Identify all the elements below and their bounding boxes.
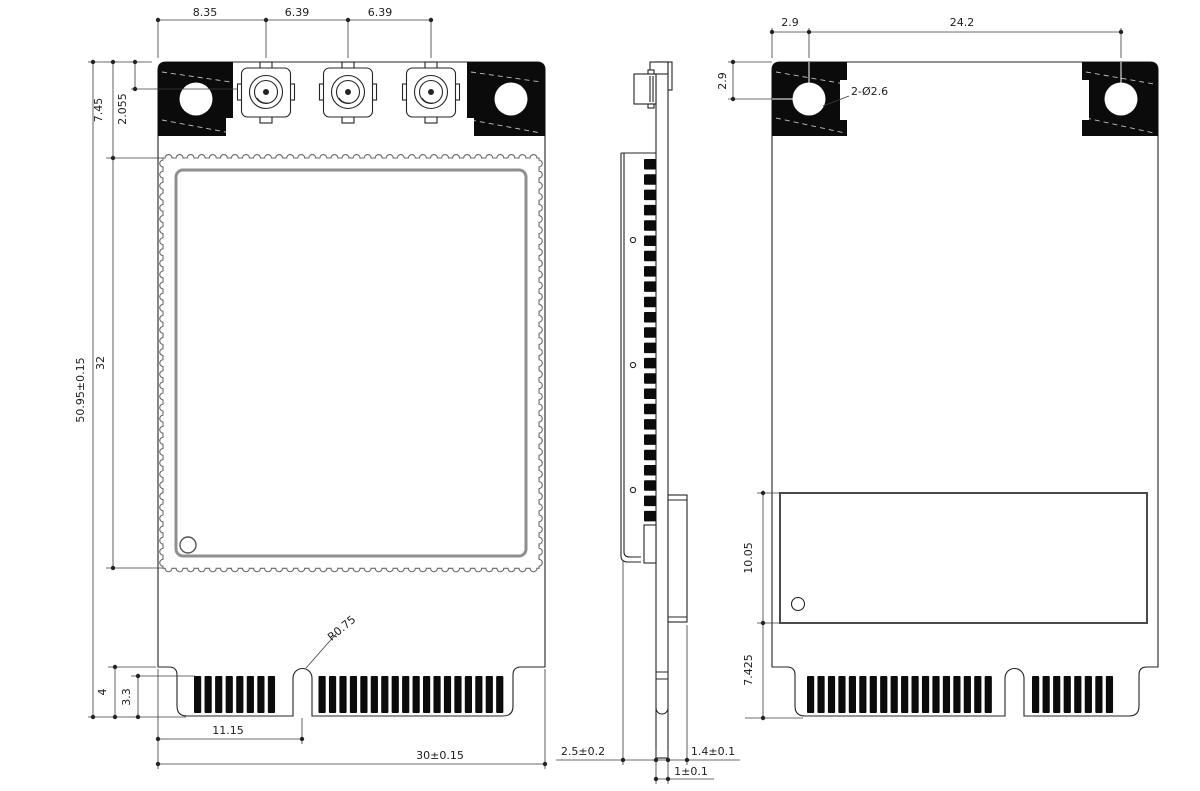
shield-contact — [644, 343, 656, 354]
edge-finger-pin — [194, 676, 201, 713]
tab-notch — [467, 118, 474, 136]
edge-finger-pin — [922, 676, 929, 713]
dim-label-1-4: 1.4±0.1 — [691, 745, 735, 758]
mounting-hole — [495, 83, 528, 116]
edge-finger-pin — [247, 676, 254, 713]
tab-notch — [226, 118, 233, 136]
shield-contact — [644, 281, 656, 292]
tab-notch — [840, 80, 847, 120]
rf-connector-3 — [403, 62, 460, 123]
edge-finger-pin — [257, 676, 264, 713]
edge-finger-pin — [838, 676, 845, 713]
side-view: 2.5±0.2 1.4±0.1 1±0.1 — [556, 62, 740, 784]
edge-finger-pin — [496, 676, 503, 713]
edge-finger-pin — [932, 676, 939, 713]
shield-contact — [644, 312, 656, 323]
back-shield — [780, 493, 1147, 623]
dim-label-3-3: 3.3 — [120, 688, 133, 706]
side-rf-connector — [634, 70, 656, 108]
edge-finger-pin — [465, 676, 472, 713]
mounting-hole — [793, 83, 826, 116]
edge-finger-pin — [350, 676, 357, 713]
shield-contact — [644, 404, 656, 415]
dim-label-8-35: 8.35 — [193, 6, 218, 19]
shield-contact — [644, 434, 656, 445]
shield-contact — [644, 190, 656, 201]
dim-label-7-425: 7.425 — [742, 654, 755, 686]
shield-contact — [644, 297, 656, 308]
shield-contact — [644, 511, 656, 522]
edge-finger-pin — [454, 676, 461, 713]
edge-finger-pin — [1085, 676, 1092, 713]
shield-contact — [644, 159, 656, 170]
shield-contact — [644, 327, 656, 338]
edge-finger-pin — [371, 676, 378, 713]
dim-label-6-39b: 6.39 — [368, 6, 393, 19]
side-shield-contacts — [644, 159, 656, 521]
mechanical-drawing: 8.35 6.39 6.39 7.45 2.055 50.95±0.15 32 … — [0, 0, 1200, 791]
dim-label-10-05: 10.05 — [742, 542, 755, 574]
edge-finger-pin — [402, 676, 409, 713]
edge-finger-pin — [236, 676, 243, 713]
shield-contact — [644, 465, 656, 476]
edge-finger-pin — [1032, 676, 1039, 713]
shield-contact — [644, 496, 656, 507]
shield-contact — [644, 389, 656, 400]
edge-finger-pin — [392, 676, 399, 713]
edge-finger-pin — [486, 676, 493, 713]
edge-finger-pin — [1053, 676, 1060, 713]
edge-finger-pin — [1074, 676, 1081, 713]
edge-finger-pin — [880, 676, 887, 713]
shield-contact — [644, 480, 656, 491]
edge-finger-pin — [226, 676, 233, 713]
edge-finger-pin — [964, 676, 971, 713]
edge-finger-pin — [985, 676, 992, 713]
edge-finger-pin — [360, 676, 367, 713]
shield-contact — [644, 205, 656, 216]
edge-finger-pin — [849, 676, 856, 713]
shield-contact — [644, 174, 656, 185]
rf-connector-2 — [320, 62, 377, 123]
edge-finger-pin — [974, 676, 981, 713]
pin1-marker — [180, 537, 196, 553]
dim-label-11-15: 11.15 — [212, 724, 244, 737]
side-dimensions: 2.5±0.2 1.4±0.1 1±0.1 — [556, 560, 740, 784]
edge-finger-pin — [433, 676, 440, 713]
shield-vent-hole — [630, 487, 635, 492]
dim-label-1: 1±0.1 — [674, 765, 708, 778]
back-mounting-tab-right — [1082, 62, 1158, 136]
dim-label-2-9y: 2.9 — [716, 72, 729, 90]
edge-finger-pin — [891, 676, 898, 713]
dim-label-4: 4 — [96, 689, 109, 696]
dim-label-30: 30±0.15 — [416, 749, 464, 762]
edge-finger-pin — [205, 676, 212, 713]
edge-finger-pin — [859, 676, 866, 713]
edge-finger-pin — [1064, 676, 1071, 713]
edge-finger-pin — [444, 676, 451, 713]
edge-finger-pin — [319, 676, 326, 713]
edge-finger-pin — [381, 676, 388, 713]
edge-finger-pin — [901, 676, 908, 713]
edge-finger-pin — [943, 676, 950, 713]
edge-finger-pin — [1043, 676, 1050, 713]
edge-finger-pin — [912, 676, 919, 713]
edge-finger-pin — [215, 676, 222, 713]
shield-contact — [644, 358, 656, 369]
shield-contact — [644, 266, 656, 277]
edge-finger-pin — [475, 676, 482, 713]
shield-contact — [644, 419, 656, 430]
shield-contact — [644, 220, 656, 231]
front-mounting-tab-left — [158, 62, 233, 136]
back-view: 2.9 24.2 2.9 2-Ø2.6 10.05 7.425 — [716, 16, 1158, 720]
edge-finger-pin — [268, 676, 275, 713]
edge-finger-pin — [817, 676, 824, 713]
edge-finger-pin — [828, 676, 835, 713]
shield-contact — [644, 373, 656, 384]
side-pcb — [656, 62, 668, 758]
shield-vent-hole — [630, 237, 635, 242]
dim-label-2-9x: 2.9 — [781, 16, 799, 29]
edge-finger-pin — [1095, 676, 1102, 713]
edge-finger-pin — [1106, 676, 1113, 713]
dim-label-hole-dia: 2-Ø2.6 — [851, 85, 888, 98]
tab-notch — [1082, 80, 1089, 120]
side-top-tab-edge — [668, 62, 672, 90]
edge-finger-pin — [870, 676, 877, 713]
shield-contact — [644, 450, 656, 461]
side-shield — [621, 153, 656, 563]
edge-finger-pin — [807, 676, 814, 713]
side-back-shield — [668, 495, 687, 622]
shield-contact — [644, 236, 656, 247]
edge-finger-pin — [339, 676, 346, 713]
mounting-hole — [1105, 83, 1138, 116]
dim-label-7-45: 7.45 — [92, 98, 105, 123]
dim-label-2-055: 2.055 — [116, 93, 129, 125]
front-view: 8.35 6.39 6.39 7.45 2.055 50.95±0.15 32 … — [74, 6, 547, 769]
mounting-hole — [180, 83, 213, 116]
dim-label-24-2: 24.2 — [950, 16, 975, 29]
dim-label-6-39a: 6.39 — [285, 6, 310, 19]
edge-finger-pin — [413, 676, 420, 713]
shield-vent-hole — [630, 362, 635, 367]
dim-label-2-5: 2.5±0.2 — [561, 745, 605, 758]
front-mounting-tab-right — [467, 62, 545, 136]
front-shield-lid — [176, 170, 526, 556]
shield-contact — [644, 251, 656, 261]
dim-label-50-95: 50.95±0.15 — [74, 357, 87, 422]
rf-connector-1 — [238, 62, 295, 123]
front-rf-connectors — [238, 62, 460, 123]
edge-finger-pin — [953, 676, 960, 713]
edge-finger-pin — [329, 676, 336, 713]
dim-label-32: 32 — [94, 356, 107, 370]
drawing-canvas: 8.35 6.39 6.39 7.45 2.055 50.95±0.15 32 … — [0, 0, 1200, 791]
edge-finger-pin — [423, 676, 430, 713]
